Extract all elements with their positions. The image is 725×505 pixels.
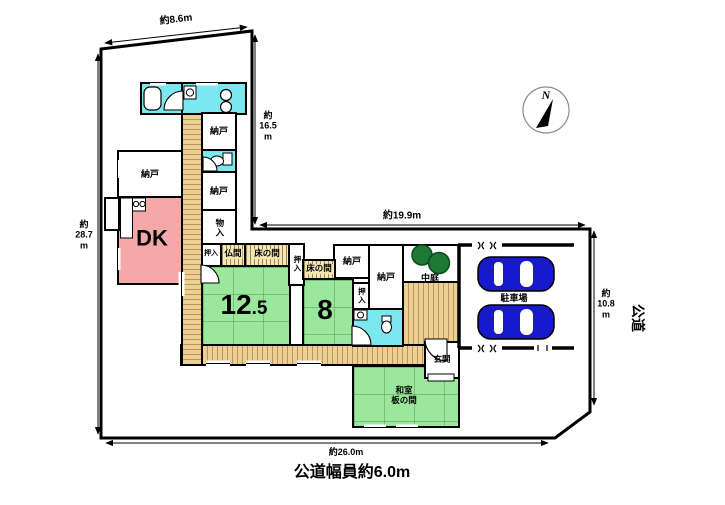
door-arc-icon: [201, 265, 219, 283]
room-label-storage-right-large: 納戸: [377, 272, 395, 282]
room-label-tatami-8: 8: [317, 294, 333, 326]
dim-left-label: 約 28.7 m: [75, 219, 93, 250]
sink-icon: [221, 90, 232, 101]
room-label-tokonoma-east: 床の間: [305, 264, 333, 274]
washer-icon: [184, 86, 196, 99]
room-label-tatami-125: 12.5: [220, 289, 267, 321]
room-label-storage-right-small: 納戸: [343, 256, 361, 266]
room-label-washitsu: 和室 板の間: [391, 386, 417, 406]
door-arc-icon: [164, 91, 183, 110]
compass-north-label: N: [542, 89, 551, 103]
room-label-storage-mid: 納戸: [210, 186, 228, 196]
road-label: 公道: [630, 304, 646, 332]
car-icon: [478, 305, 554, 339]
room-label-dk: DK: [136, 225, 168, 250]
room-label-oshiire-east: 押入: [292, 256, 301, 273]
dim-middle-label: 約19.9m: [383, 210, 421, 222]
room-label-oshiire-right: 押入: [357, 288, 366, 305]
dim-right-label: 約 10.8 m: [597, 288, 615, 319]
dim-bottom-label: 約26.0m: [329, 447, 364, 457]
bay-window: [105, 198, 119, 230]
room-label-tokonoma-west: 床の間: [253, 249, 281, 259]
room-label-oshiire-top: 押入: [204, 250, 218, 258]
room-label-butsuma: 仏間: [223, 249, 242, 259]
room-label-storage-top: 納戸: [210, 126, 228, 136]
room-label-monoire: 物入: [214, 219, 224, 238]
tree-icon: [429, 253, 450, 274]
door-arc-icon: [352, 326, 371, 345]
room-label-courtyard: 中庭: [421, 273, 439, 283]
car-icon: [478, 257, 554, 291]
entrance-step: [428, 374, 454, 381]
room-label-storage-left: 納戸: [141, 169, 159, 179]
room-label-parking: 駐車場: [500, 293, 527, 303]
floor-plan-canvas: 約8.6m 約 16.5 m 約19.9m 約 28.7 m 約 10.8 m …: [0, 0, 725, 505]
bathtub-icon: [144, 87, 161, 110]
sink-icon: [221, 102, 232, 113]
door-arcs: [164, 91, 447, 361]
toilet-icon: [223, 153, 232, 165]
road-width-label: 公道幅員約6.0m: [294, 464, 410, 482]
fixtures-layer: [0, 0, 725, 505]
dim-upper-right-label: 約 16.5 m: [259, 110, 277, 141]
room-label-entrance: 玄関: [433, 355, 450, 365]
